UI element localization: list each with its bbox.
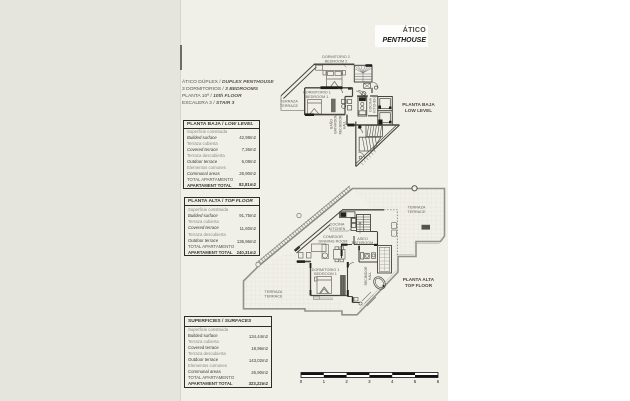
svg-text:2: 2 <box>345 379 348 384</box>
svg-text:BEDROOM 1: BEDROOM 1 <box>306 95 329 99</box>
svg-text:TERRAZA: TERRAZA <box>408 206 426 210</box>
svg-text:HALL: HALL <box>343 121 347 130</box>
svg-text:DORMITORIO 2: DORMITORIO 2 <box>322 55 350 59</box>
svg-text:5: 5 <box>414 379 417 384</box>
svg-text:DORMITORIO 1: DORMITORIO 1 <box>303 91 331 95</box>
svg-text:PLANTA ALTA: PLANTA ALTA <box>403 277 435 282</box>
svg-text:BEDROOM 1: BEDROOM 1 <box>314 272 337 276</box>
svg-text:PLANTA BAJA: PLANTA BAJA <box>402 102 435 107</box>
svg-text:TOP FLOOR: TOP FLOOR <box>405 283 433 288</box>
svg-text:TERRACE: TERRACE <box>264 294 283 298</box>
svg-text:BATHROOM: BATHROOM <box>334 114 338 134</box>
svg-text:4: 4 <box>391 379 394 384</box>
svg-text:0: 0 <box>300 379 303 384</box>
svg-text:LOW LEVEL: LOW LEVEL <box>405 108 432 113</box>
svg-text:TERRAZA: TERRAZA <box>265 290 283 294</box>
svg-text:1: 1 <box>323 379 326 384</box>
svg-text:DORMITORIO 1: DORMITORIO 1 <box>312 268 340 272</box>
svg-text:TERRACE: TERRACE <box>280 104 299 108</box>
svg-text:HALL: HALL <box>368 272 372 281</box>
svg-text:ASEO: ASEO <box>357 237 368 241</box>
svg-text:DINNING ROOM: DINNING ROOM <box>319 240 348 244</box>
svg-text:TERRACE: TERRACE <box>407 210 426 214</box>
svg-text:COCINA: COCINA <box>330 222 345 226</box>
svg-text:6: 6 <box>437 379 440 384</box>
svg-text:KITCHEN: KITCHEN <box>373 97 377 113</box>
svg-text:3: 3 <box>368 379 371 384</box>
svg-text:COMEDOR: COMEDOR <box>323 235 343 239</box>
svg-text:BEDROOM 2: BEDROOM 2 <box>325 59 348 63</box>
svg-text:TERRAZA: TERRAZA <box>280 100 298 104</box>
svg-text:KITCHEN: KITCHEN <box>329 227 346 231</box>
